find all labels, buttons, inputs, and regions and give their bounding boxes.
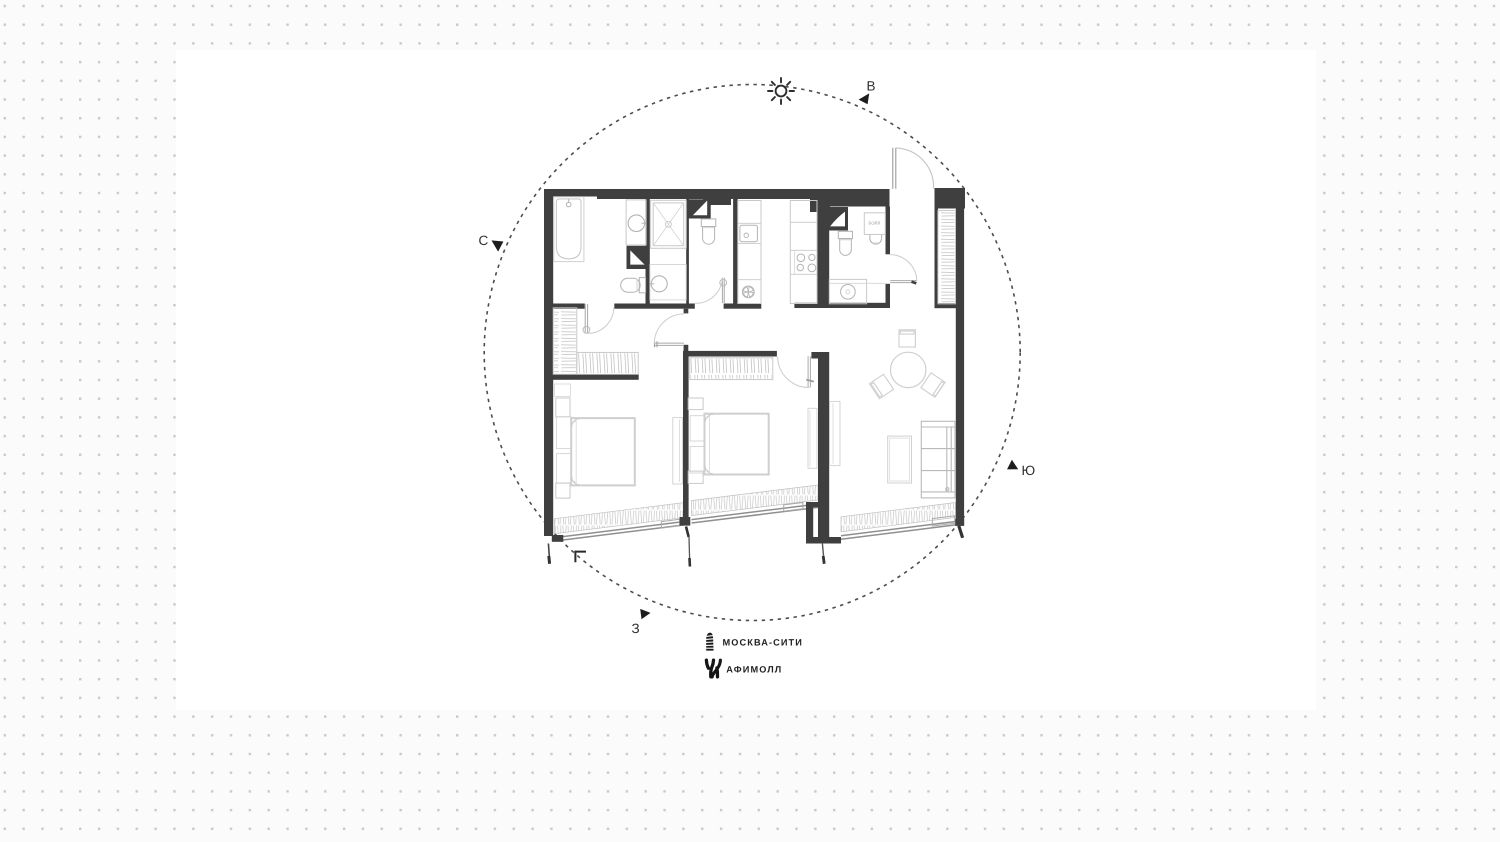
svg-text:Ю: Ю — [1022, 463, 1036, 478]
svg-text:БОЙЛ: БОЙЛ — [869, 221, 881, 226]
svg-text:МОСКВА-СИТИ: МОСКВА-СИТИ — [723, 638, 803, 648]
svg-text:АФИМОЛЛ: АФИМОЛЛ — [726, 664, 782, 674]
svg-text:С: С — [479, 233, 489, 248]
svg-text:З: З — [632, 621, 640, 636]
svg-text:В: В — [867, 79, 876, 94]
